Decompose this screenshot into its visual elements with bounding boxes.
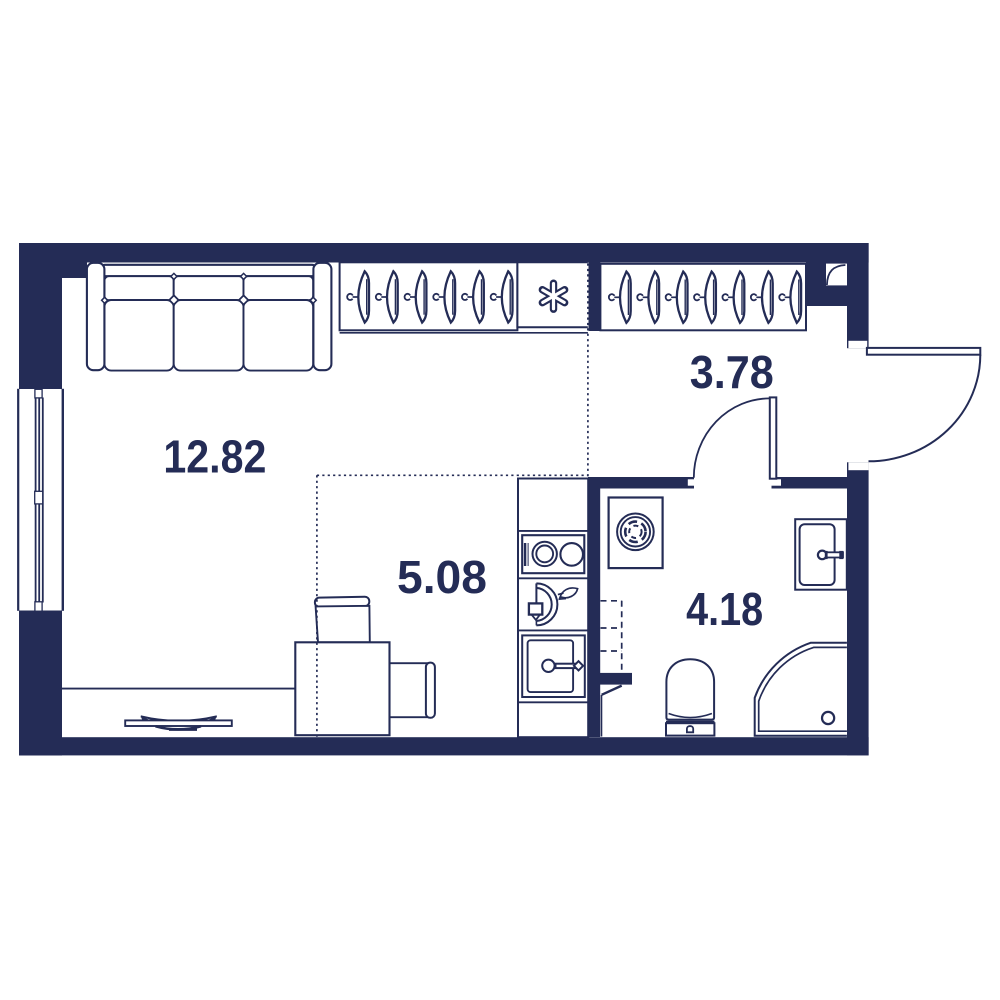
svg-text:12.82: 12.82 xyxy=(163,430,266,482)
svg-text:5.08: 5.08 xyxy=(397,551,487,603)
svg-text:4.18: 4.18 xyxy=(686,583,763,635)
svg-text:3.78: 3.78 xyxy=(690,346,774,398)
